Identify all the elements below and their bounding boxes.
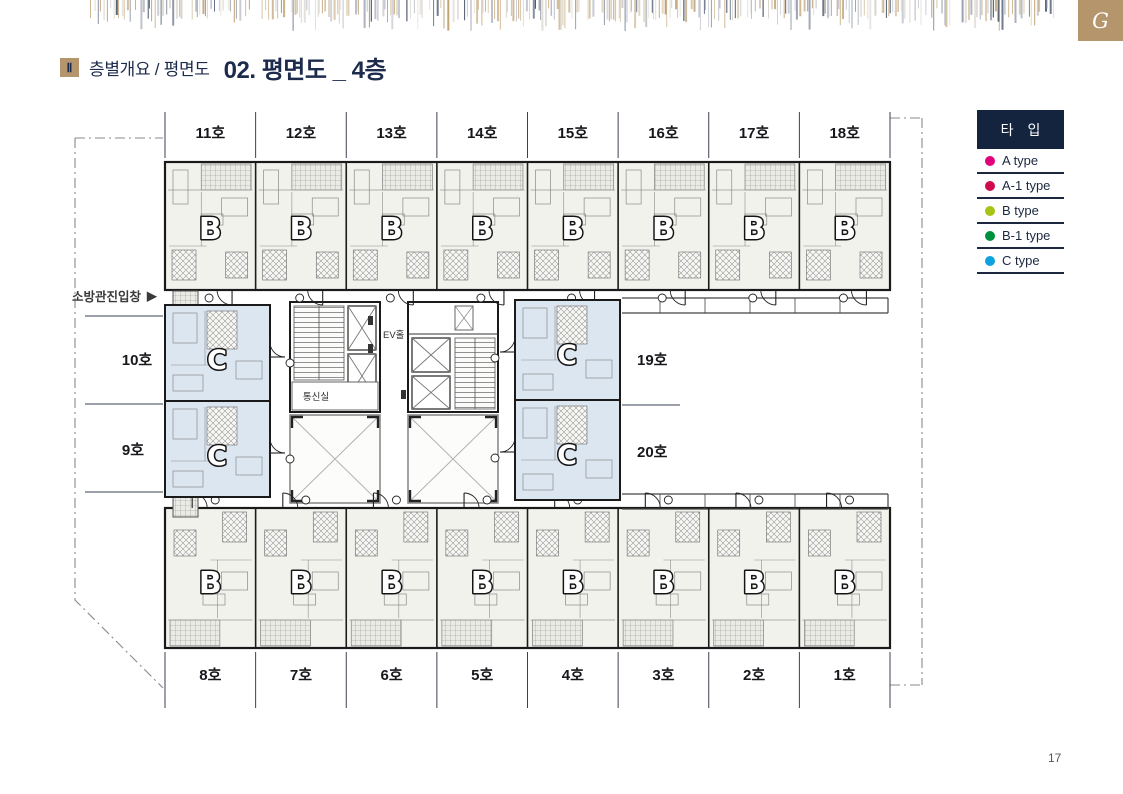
unit-number-label: 2호	[743, 667, 765, 684]
fire-entry-arrow-icon: ▶	[146, 289, 158, 303]
unit-type-letter: C	[207, 441, 227, 472]
unit-number-label: 6호	[380, 667, 402, 684]
unit-number-label: 12호	[286, 125, 317, 142]
floor-plan: BBBBBBBBBBBBBBBBCCCC 11호12호13호14호15호16호1…	[0, 0, 1123, 794]
unit-type-letter: B	[561, 566, 584, 601]
unit-type-letter: B	[743, 566, 766, 601]
unit-number-label: 8호	[199, 667, 221, 684]
unit-number-label: 17호	[739, 125, 770, 142]
ev-hall-label: EV홀	[383, 329, 405, 341]
unit-type-letter: B	[199, 212, 222, 247]
unit-number-label: 7호	[290, 667, 312, 684]
unit-type-letter: B	[833, 566, 856, 601]
unit-type-letter: B	[652, 566, 675, 601]
unit-type-letter: B	[290, 566, 313, 601]
light-well-b	[408, 415, 498, 503]
page-number: 17	[1048, 751, 1061, 765]
unit-type-letter: C	[207, 345, 227, 376]
unit-number-label: 14호	[467, 125, 498, 142]
unit-type-letter: C	[557, 440, 577, 471]
unit-type-letter: B	[380, 212, 403, 247]
unit-number-label-9: 9호	[122, 442, 144, 459]
unit-number-label: 1호	[834, 667, 856, 684]
unit-number-label: 15호	[558, 125, 589, 142]
unit-number-label: 3호	[652, 667, 674, 684]
fire-entry-label: 소방관진입창	[72, 289, 142, 304]
unit-type-letter: B	[561, 212, 584, 247]
unit-number-label: 18호	[829, 125, 860, 142]
unit-type-letter: B	[833, 212, 856, 247]
unit-number-label: 16호	[648, 125, 679, 142]
unit-type-letter: B	[290, 212, 313, 247]
unit-c-10호: C	[165, 305, 294, 401]
unit-type-letter: B	[471, 566, 494, 601]
unit-number-label: 13호	[376, 125, 407, 142]
light-well-a	[290, 415, 380, 503]
right-wing-strips	[622, 298, 888, 509]
unit-number-label-20: 20호	[637, 444, 668, 461]
unit-number-label-19: 19호	[637, 352, 668, 369]
unit-type-letter: B	[652, 212, 675, 247]
unit-number-label-10: 10호	[122, 352, 153, 369]
unit-number-label: 4호	[562, 667, 584, 684]
unit-type-letter: B	[199, 566, 222, 601]
unit-type-letter: B	[471, 212, 494, 247]
unit-c-9호: C	[165, 401, 294, 497]
shaft-stub-bottom	[173, 497, 198, 517]
unit-number-label: 5호	[471, 667, 493, 684]
comm-room-label: 통신실	[303, 392, 329, 403]
unit-number-label: 11호	[195, 125, 225, 142]
unit-type-letter: B	[380, 566, 403, 601]
unit-c-19호: C	[491, 300, 620, 400]
unit-type-letter: C	[557, 340, 577, 371]
unit-type-letter: B	[743, 212, 766, 247]
unit-c-20호: C	[491, 400, 620, 500]
core-b	[401, 302, 498, 412]
